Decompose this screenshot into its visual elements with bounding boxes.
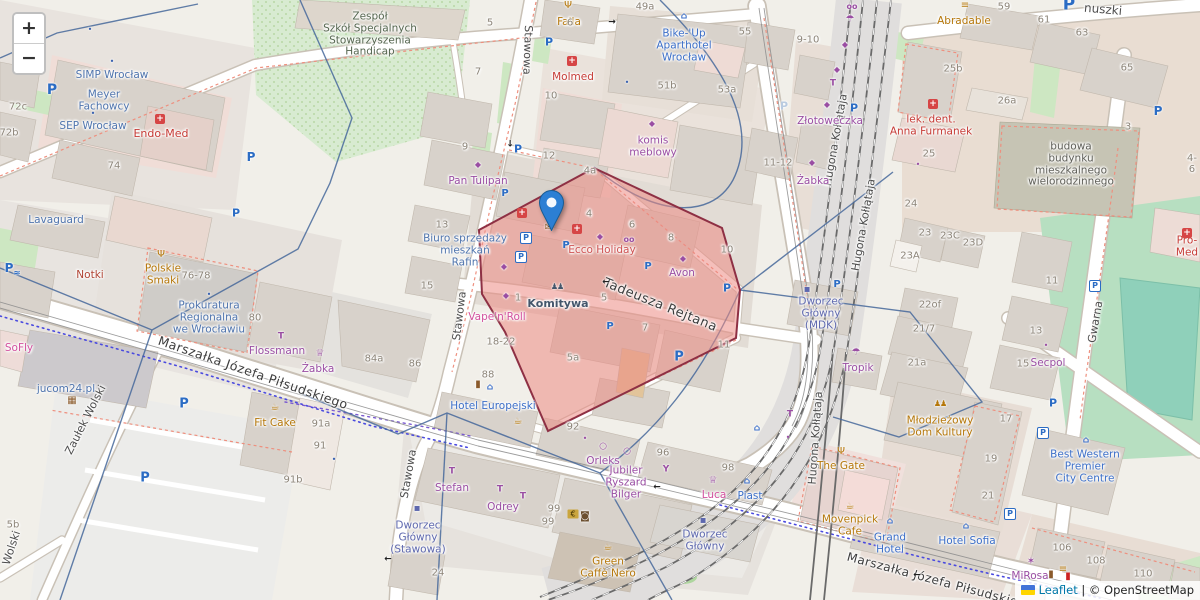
map-marker[interactable] xyxy=(539,190,564,231)
leaflet-link[interactable]: Leaflet xyxy=(1039,583,1078,597)
ukraine-flag-icon xyxy=(1021,585,1035,595)
osm-link[interactable]: © OpenStreetMap xyxy=(1089,583,1194,597)
map-tiles xyxy=(0,0,1200,600)
attribution-separator: | xyxy=(1081,583,1085,597)
attribution: Leaflet | © OpenStreetMap xyxy=(1015,581,1200,600)
map-canvas[interactable]: StawowaStawowaStawowaHugona KołłątajaHug… xyxy=(0,0,1200,600)
zoom-control: + − xyxy=(12,12,46,75)
zoom-in-button[interactable]: + xyxy=(14,14,44,44)
zoom-out-button[interactable]: − xyxy=(14,44,44,73)
